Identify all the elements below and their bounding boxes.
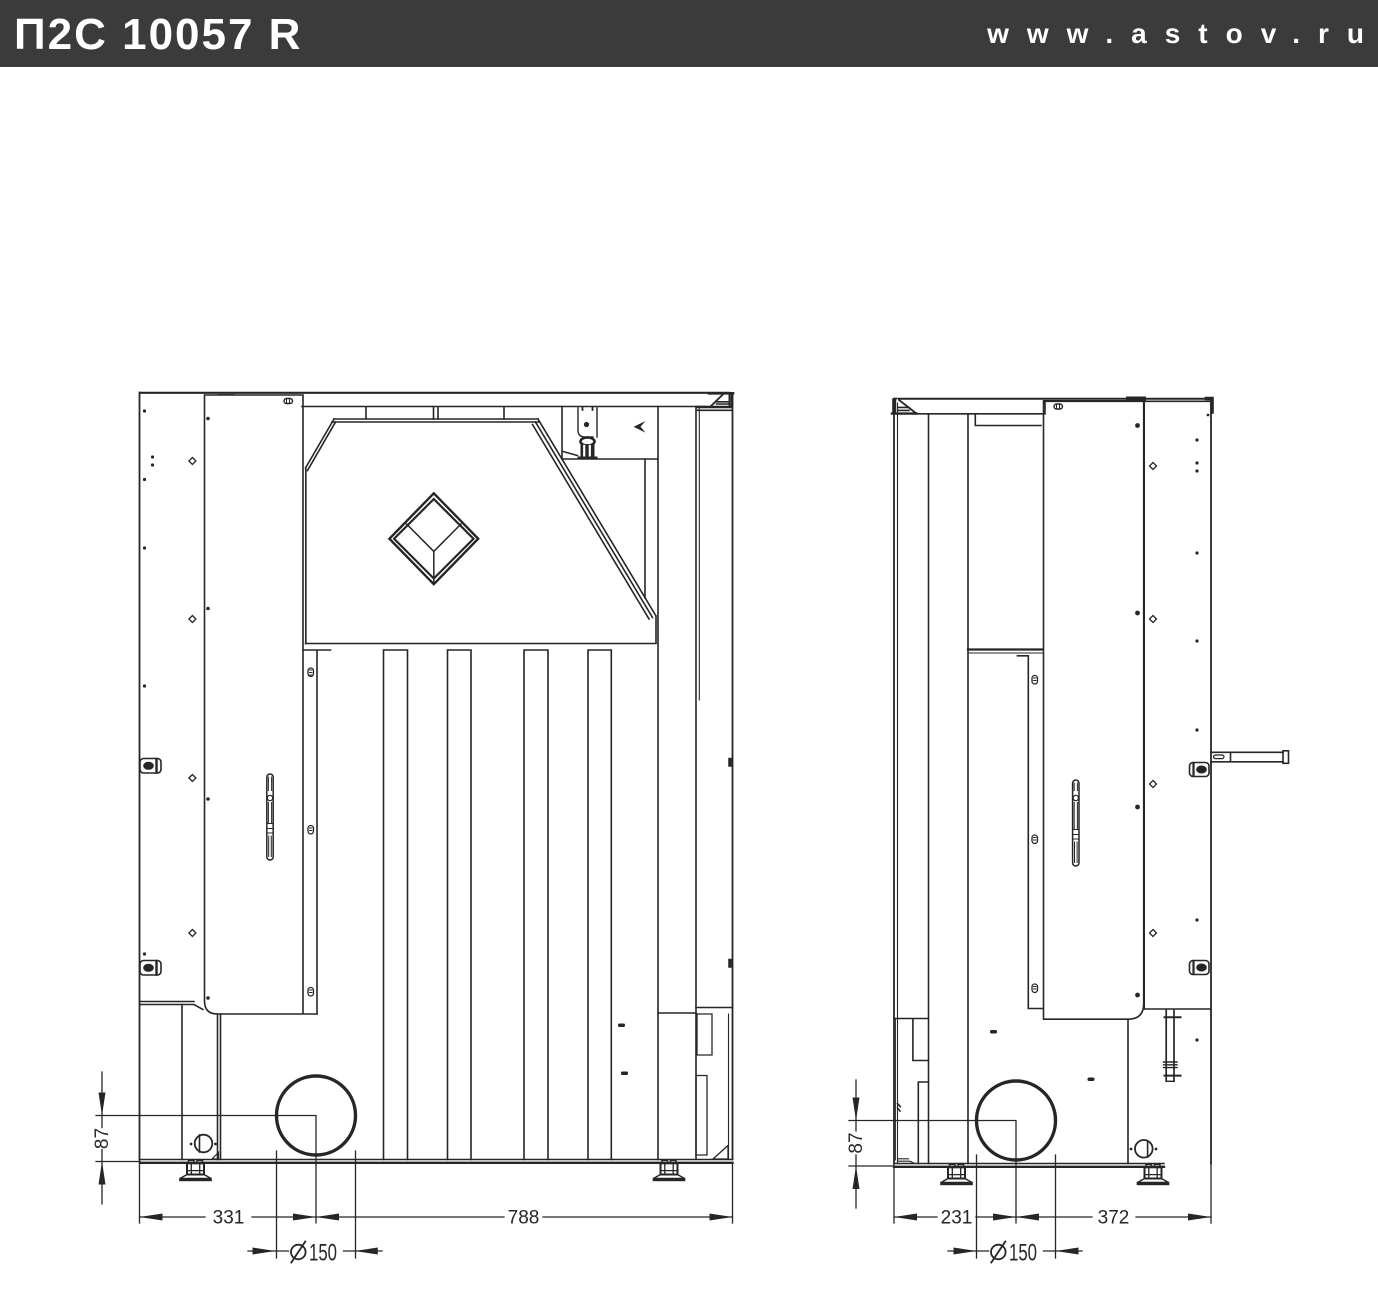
- svg-text:87: 87: [846, 1132, 867, 1153]
- svg-text:87: 87: [92, 1128, 113, 1149]
- svg-text:150: 150: [309, 1240, 337, 1267]
- svg-text:231: 231: [941, 1208, 973, 1229]
- svg-text:788: 788: [508, 1208, 540, 1229]
- svg-text:331: 331: [213, 1208, 245, 1229]
- svg-text:372: 372: [1098, 1208, 1130, 1229]
- svg-text:150: 150: [1009, 1240, 1037, 1267]
